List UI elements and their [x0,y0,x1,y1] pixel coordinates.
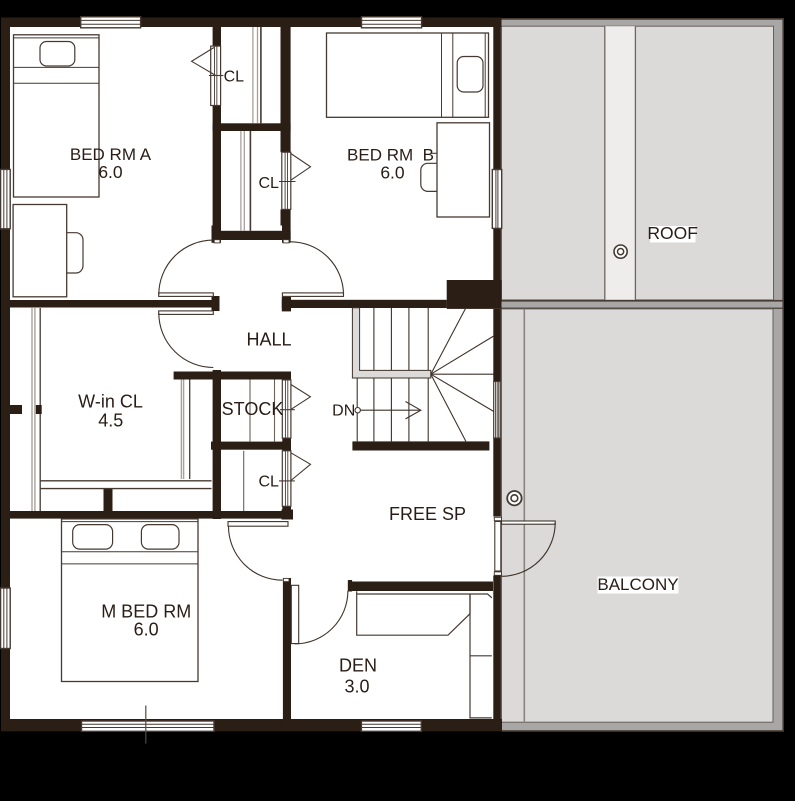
svg-text:BALCONY: BALCONY [597,575,678,594]
svg-text:6.0: 6.0 [134,620,159,640]
svg-text:HALL: HALL [246,330,291,350]
svg-text:ROOF: ROOF [647,223,698,243]
svg-text:CL: CL [258,175,279,192]
svg-text:3.0: 3.0 [344,676,369,696]
svg-text:STOCK: STOCK [222,399,284,419]
svg-text:CL: CL [224,68,245,85]
svg-text:W-in CL: W-in CL [78,392,143,412]
svg-text:6.0: 6.0 [380,163,405,183]
svg-text:FREE SP: FREE SP [389,504,466,524]
svg-text:4.5: 4.5 [98,411,123,431]
svg-text:DEN: DEN [339,655,377,675]
svg-text:M BED RM: M BED RM [101,601,191,621]
svg-text:CL: CL [258,474,279,491]
svg-text:6.0: 6.0 [98,162,123,182]
svg-text:DN: DN [332,402,355,419]
